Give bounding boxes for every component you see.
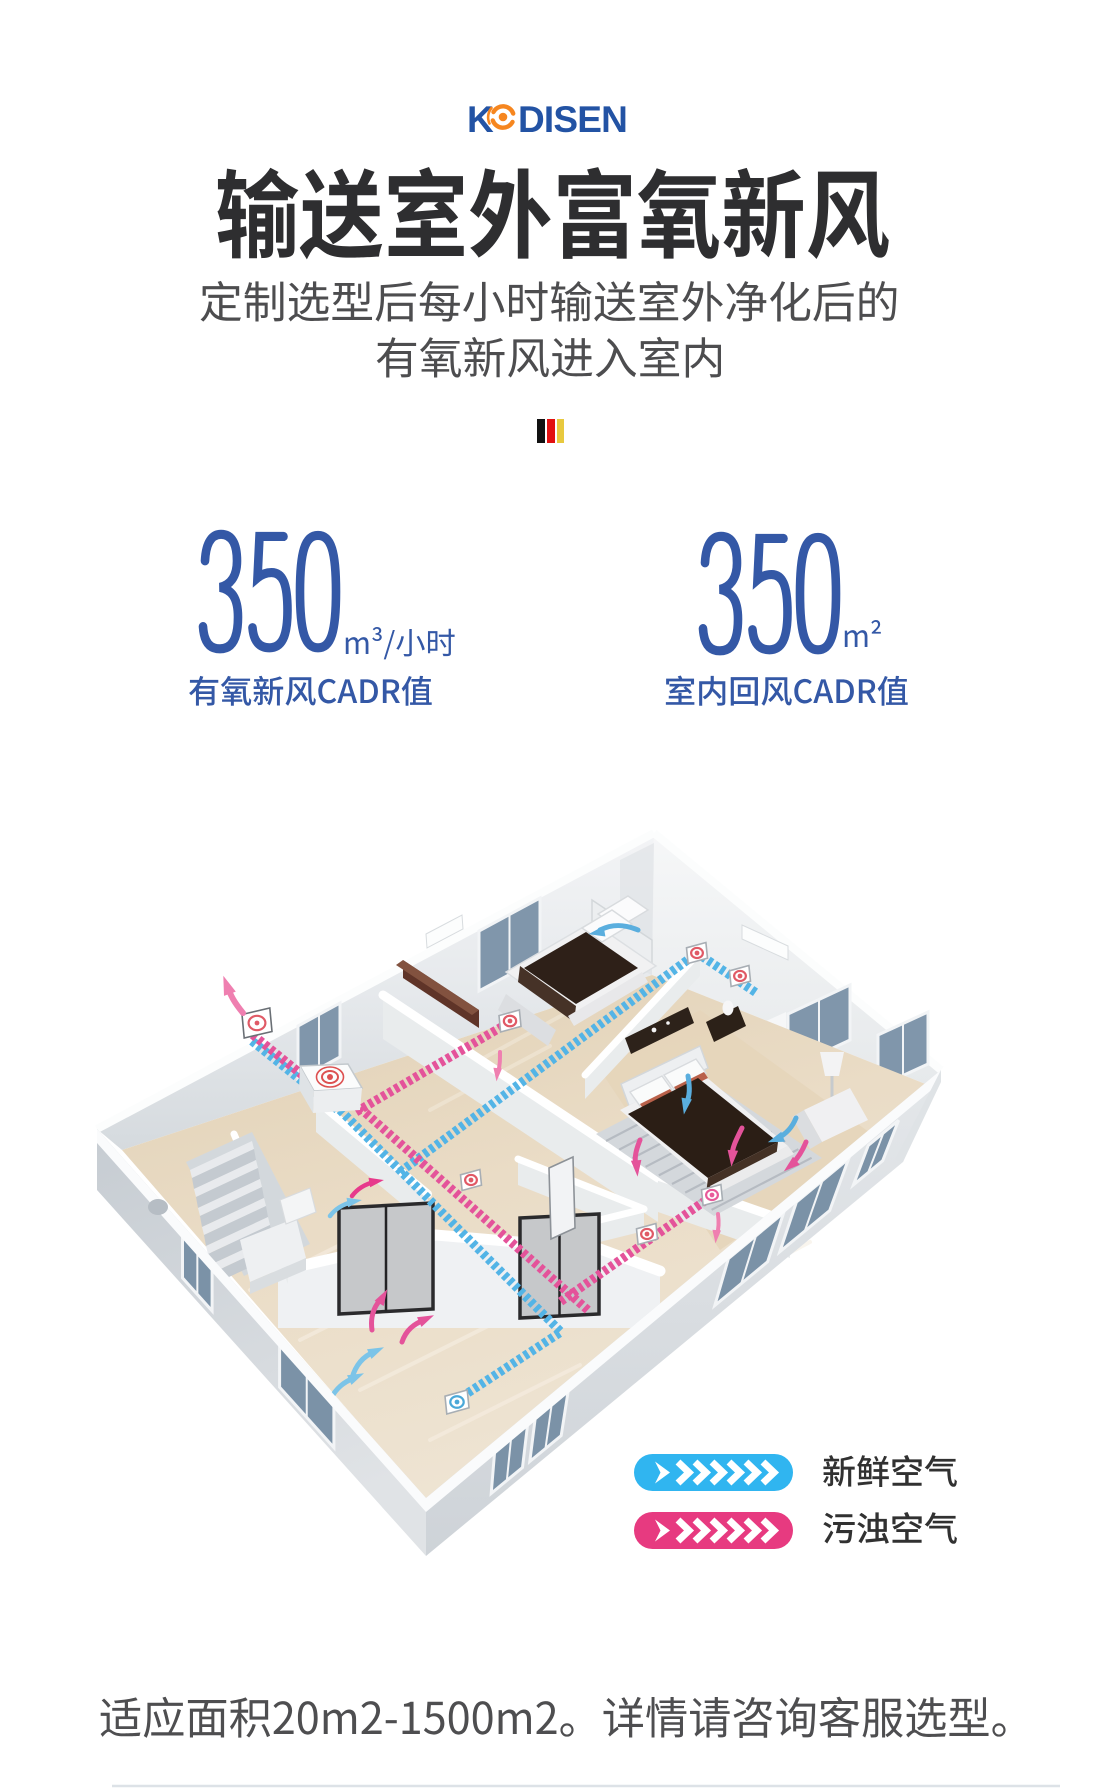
- svg-text:DISEN: DISEN: [518, 99, 627, 140]
- svg-text:K: K: [467, 99, 494, 140]
